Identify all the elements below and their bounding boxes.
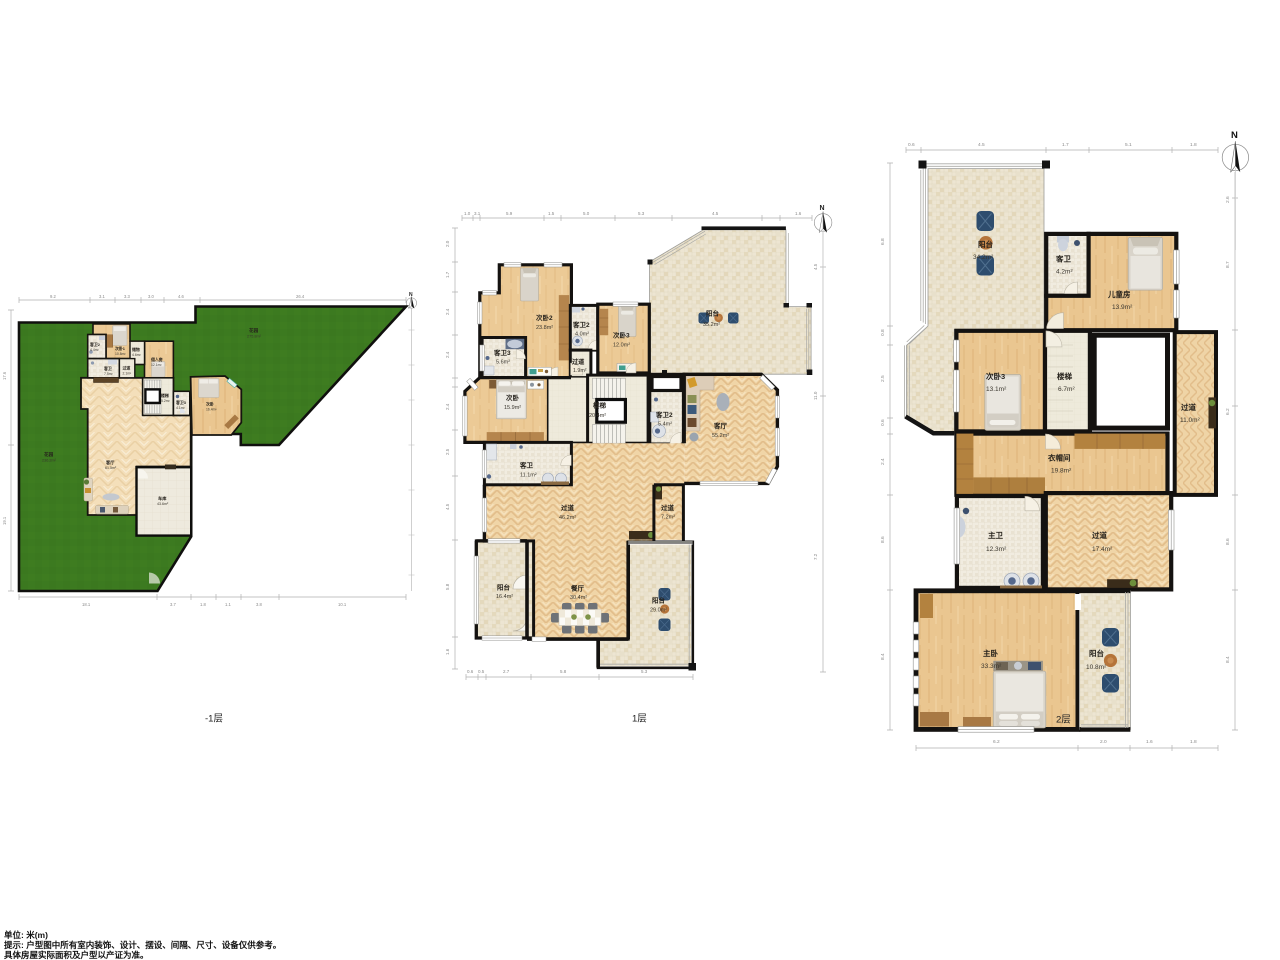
svg-text:3.8: 3.8 [256,602,262,607]
svg-text:8.4: 8.4 [1225,656,1231,663]
svg-text:次卧1: 次卧1 [115,346,126,351]
svg-text:0.8: 0.8 [880,329,886,336]
svg-text:13.9m²: 13.9m² [1112,304,1133,311]
svg-text:车库: 车库 [158,495,167,502]
svg-text:过道: 过道 [1181,402,1197,412]
svg-text:过道: 过道 [572,358,585,366]
svg-text:客卫: 客卫 [103,366,112,371]
svg-text:43.6m²: 43.6m² [157,502,169,506]
svg-text:1.6: 1.6 [445,648,450,655]
svg-text:过道: 过道 [123,366,131,371]
svg-text:17.6: 17.6 [2,371,7,380]
svg-text:客卫2: 客卫2 [572,320,590,329]
svg-text:7.2: 7.2 [813,553,818,560]
svg-text:0.6: 0.6 [467,669,474,674]
svg-text:236.2m²: 236.2m² [42,459,57,463]
svg-text:0.6: 0.6 [908,142,915,148]
svg-text:5.2m²: 5.2m² [161,399,171,403]
svg-text:1.8: 1.8 [200,602,206,607]
svg-text:次卧2: 次卧2 [536,313,553,322]
svg-text:5.0: 5.0 [583,211,590,216]
svg-text:单位: 米(m): 单位: 米(m) [4,930,48,940]
svg-text:2.0: 2.0 [1100,739,1107,745]
svg-text:9.2: 9.2 [50,294,56,299]
svg-text:1.0: 1.0 [464,211,471,216]
svg-text:次卧: 次卧 [506,393,520,402]
svg-text:5.9: 5.9 [506,211,513,216]
svg-text:7.2m²: 7.2m² [661,515,675,521]
svg-text:6.2: 6.2 [993,739,1000,745]
svg-text:阳台: 阳台 [706,309,720,318]
svg-text:2.4: 2.4 [445,308,450,315]
svg-text:26.4: 26.4 [296,294,305,299]
svg-text:8.7: 8.7 [1225,261,1231,268]
svg-text:楼梯: 楼梯 [593,401,607,410]
svg-text:5.4m²: 5.4m² [658,422,672,428]
svg-text:具体房屋实际面积及户型以产证为准。: 具体房屋实际面积及户型以产证为准。 [3,950,149,960]
svg-text:储物: 储物 [132,347,140,352]
svg-text:4.1m²: 4.1m² [176,406,186,410]
svg-text:2.5: 2.5 [445,448,450,455]
svg-text:23.8m²: 23.8m² [536,325,553,331]
svg-text:2.7: 2.7 [503,669,510,674]
svg-text:客卫: 客卫 [1055,254,1072,264]
svg-text:客厅: 客厅 [713,421,728,430]
svg-text:1.6: 1.6 [795,211,802,216]
svg-text:过道: 过道 [561,503,575,512]
svg-text:16.4m²: 16.4m² [496,594,513,600]
svg-text:楼梯: 楼梯 [161,393,169,398]
svg-text:1.9m²: 1.9m² [573,368,587,374]
svg-text:34.2m²: 34.2m² [973,254,994,261]
svg-text:2.4: 2.4 [880,458,886,465]
svg-text:5.1: 5.1 [1125,142,1132,148]
svg-text:次卧: 次卧 [206,402,214,407]
svg-text:1层: 1层 [632,714,647,725]
svg-text:-1层: -1层 [205,714,223,725]
svg-text:花园: 花园 [44,451,54,458]
svg-text:10.8m²: 10.8m² [1086,664,1107,671]
svg-text:N: N [1231,130,1238,141]
svg-text:4.6: 4.6 [178,294,184,299]
svg-text:0.5: 0.5 [478,669,485,674]
svg-text:8.6: 8.6 [880,536,886,543]
svg-text:55.2m²: 55.2m² [712,433,729,439]
svg-text:过道: 过道 [661,503,675,512]
svg-text:4.4m²: 4.4m² [90,348,100,352]
svg-text:4.5: 4.5 [445,503,450,510]
svg-text:提示: 户型图中所有室内装饰、设计、摆设、间隔、尺寸、设备仅: 提示: 户型图中所有室内装饰、设计、摆设、间隔、尺寸、设备仅供参考。 [4,940,281,950]
svg-text:61.5m²: 61.5m² [105,466,117,470]
svg-text:客卫2: 客卫2 [89,342,101,347]
svg-text:35.2m²: 35.2m² [703,322,720,328]
svg-text:阳台: 阳台 [978,239,993,249]
svg-text:11.1m²: 11.1m² [520,473,537,479]
svg-text:阳台: 阳台 [652,596,666,605]
svg-text:4.5: 4.5 [813,263,818,270]
svg-text:10.8m²: 10.8m² [115,352,126,356]
svg-text:2.4: 2.4 [445,351,450,358]
svg-text:N: N [820,205,825,212]
svg-text:4.6m²: 4.6m² [132,353,142,357]
svg-text:阳台: 阳台 [1089,648,1105,658]
svg-text:275.8m²: 275.8m² [247,335,262,339]
svg-text:5.6m²: 5.6m² [496,360,510,366]
svg-text:2.4: 2.4 [445,403,450,410]
svg-text:8.6: 8.6 [1225,538,1231,545]
svg-text:2.1m²: 2.1m² [123,371,133,375]
svg-text:6.8: 6.8 [880,238,886,245]
svg-text:1.7: 1.7 [445,271,450,278]
svg-text:次卧3: 次卧3 [986,371,1005,381]
svg-text:11.0m²: 11.0m² [1180,417,1201,424]
svg-text:7.5m²: 7.5m² [104,372,114,376]
svg-text:6.2: 6.2 [1225,408,1231,415]
svg-text:次卧3: 次卧3 [613,331,630,340]
svg-text:19.8m²: 19.8m² [1051,468,1072,475]
svg-text:19.1: 19.1 [2,516,7,525]
svg-text:1.7: 1.7 [1062,142,1069,148]
svg-text:客卫: 客卫 [519,461,534,470]
svg-text:阳台: 阳台 [497,583,511,592]
svg-text:儿童房: 儿童房 [1107,289,1131,299]
svg-text:1.1: 1.1 [225,602,231,607]
svg-text:客卫3: 客卫3 [175,400,187,405]
svg-text:12.1m²: 12.1m² [151,363,162,367]
svg-text:3.1: 3.1 [99,294,105,299]
svg-text:客卫2: 客卫2 [655,410,673,419]
svg-text:主卫: 主卫 [988,530,1003,540]
svg-text:1.8: 1.8 [1190,739,1197,745]
svg-text:4.5: 4.5 [712,211,719,216]
svg-text:餐厅: 餐厅 [570,584,585,593]
svg-text:4.0m²: 4.0m² [575,332,589,338]
svg-text:2.6: 2.6 [1225,196,1231,203]
svg-text:5.3: 5.3 [638,211,645,216]
svg-text:18.1: 18.1 [82,602,91,607]
svg-text:客厅: 客厅 [105,459,115,466]
svg-text:20.4m²: 20.4m² [589,413,606,419]
svg-text:5.8: 5.8 [445,583,450,590]
svg-text:6.7m²: 6.7m² [1058,386,1075,393]
svg-text:16.4m²: 16.4m² [206,407,217,411]
svg-text:2.5: 2.5 [880,375,886,382]
svg-text:花园: 花园 [249,327,259,334]
svg-text:33.3m²: 33.3m² [981,663,1002,670]
svg-text:过道: 过道 [1092,530,1108,540]
svg-text:1.6: 1.6 [1146,739,1153,745]
svg-text:4.5: 4.5 [978,142,985,148]
svg-text:12.3m²: 12.3m² [986,546,1007,553]
svg-text:12.0m²: 12.0m² [613,343,630,349]
svg-text:8.4: 8.4 [880,653,886,660]
svg-text:3.1: 3.1 [474,211,481,216]
svg-text:佣人房: 佣人房 [150,357,163,362]
svg-text:15.9m²: 15.9m² [504,405,521,411]
svg-text:13.1m²: 13.1m² [986,386,1007,393]
svg-text:10.1: 10.1 [338,602,347,607]
svg-text:主卧: 主卧 [983,648,998,658]
svg-text:客卫3: 客卫3 [493,348,511,357]
svg-text:4.2m²: 4.2m² [1056,269,1073,276]
svg-text:1.5: 1.5 [548,211,555,216]
svg-text:11.0: 11.0 [813,391,818,400]
svg-text:17.4m²: 17.4m² [1092,546,1113,553]
svg-text:5.8: 5.8 [560,669,567,674]
svg-text:衣帽间: 衣帽间 [1048,453,1071,463]
svg-text:29.0m²: 29.0m² [650,608,667,614]
svg-text:楼梯: 楼梯 [1057,371,1073,381]
svg-text:46.2m²: 46.2m² [559,515,576,521]
svg-text:3.3: 3.3 [124,294,130,299]
svg-text:3.0: 3.0 [148,294,154,299]
svg-text:30.4m²: 30.4m² [570,595,587,601]
svg-text:5.3: 5.3 [641,669,648,674]
svg-text:2.0: 2.0 [445,240,450,247]
svg-text:0.6: 0.6 [880,419,886,426]
svg-text:3.7: 3.7 [170,602,176,607]
svg-text:2层: 2层 [1056,715,1071,726]
svg-text:N: N [409,292,413,298]
svg-text:1.8: 1.8 [1190,142,1197,148]
